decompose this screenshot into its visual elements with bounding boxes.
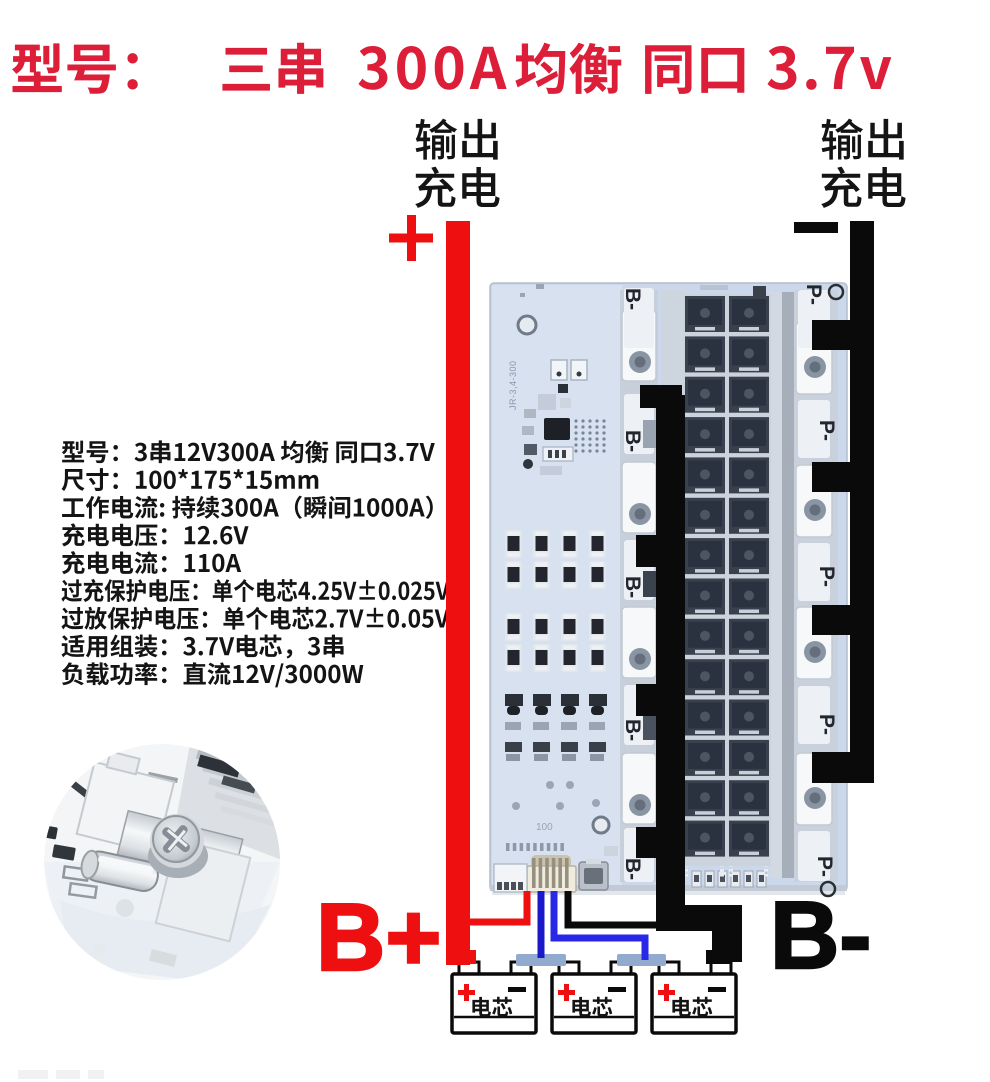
svg-text:B-: B- xyxy=(770,882,871,989)
svg-text:B+: B+ xyxy=(316,884,441,991)
svg-text:P-: P- xyxy=(815,714,838,735)
svg-text:B-: B- xyxy=(621,719,644,741)
svg-text:B-: B- xyxy=(621,858,644,880)
svg-text:P-: P- xyxy=(802,284,825,305)
svg-text:JR-3,4-300: JR-3,4-300 xyxy=(508,360,518,410)
svg-text:B-: B- xyxy=(621,576,644,598)
svg-text:P-: P- xyxy=(815,420,838,441)
svg-text:P-: P- xyxy=(815,566,838,587)
svg-text:B-: B- xyxy=(621,288,644,310)
svg-text:B-: B- xyxy=(621,430,644,452)
svg-text:100: 100 xyxy=(536,822,553,833)
svg-text:P-: P- xyxy=(813,856,836,877)
